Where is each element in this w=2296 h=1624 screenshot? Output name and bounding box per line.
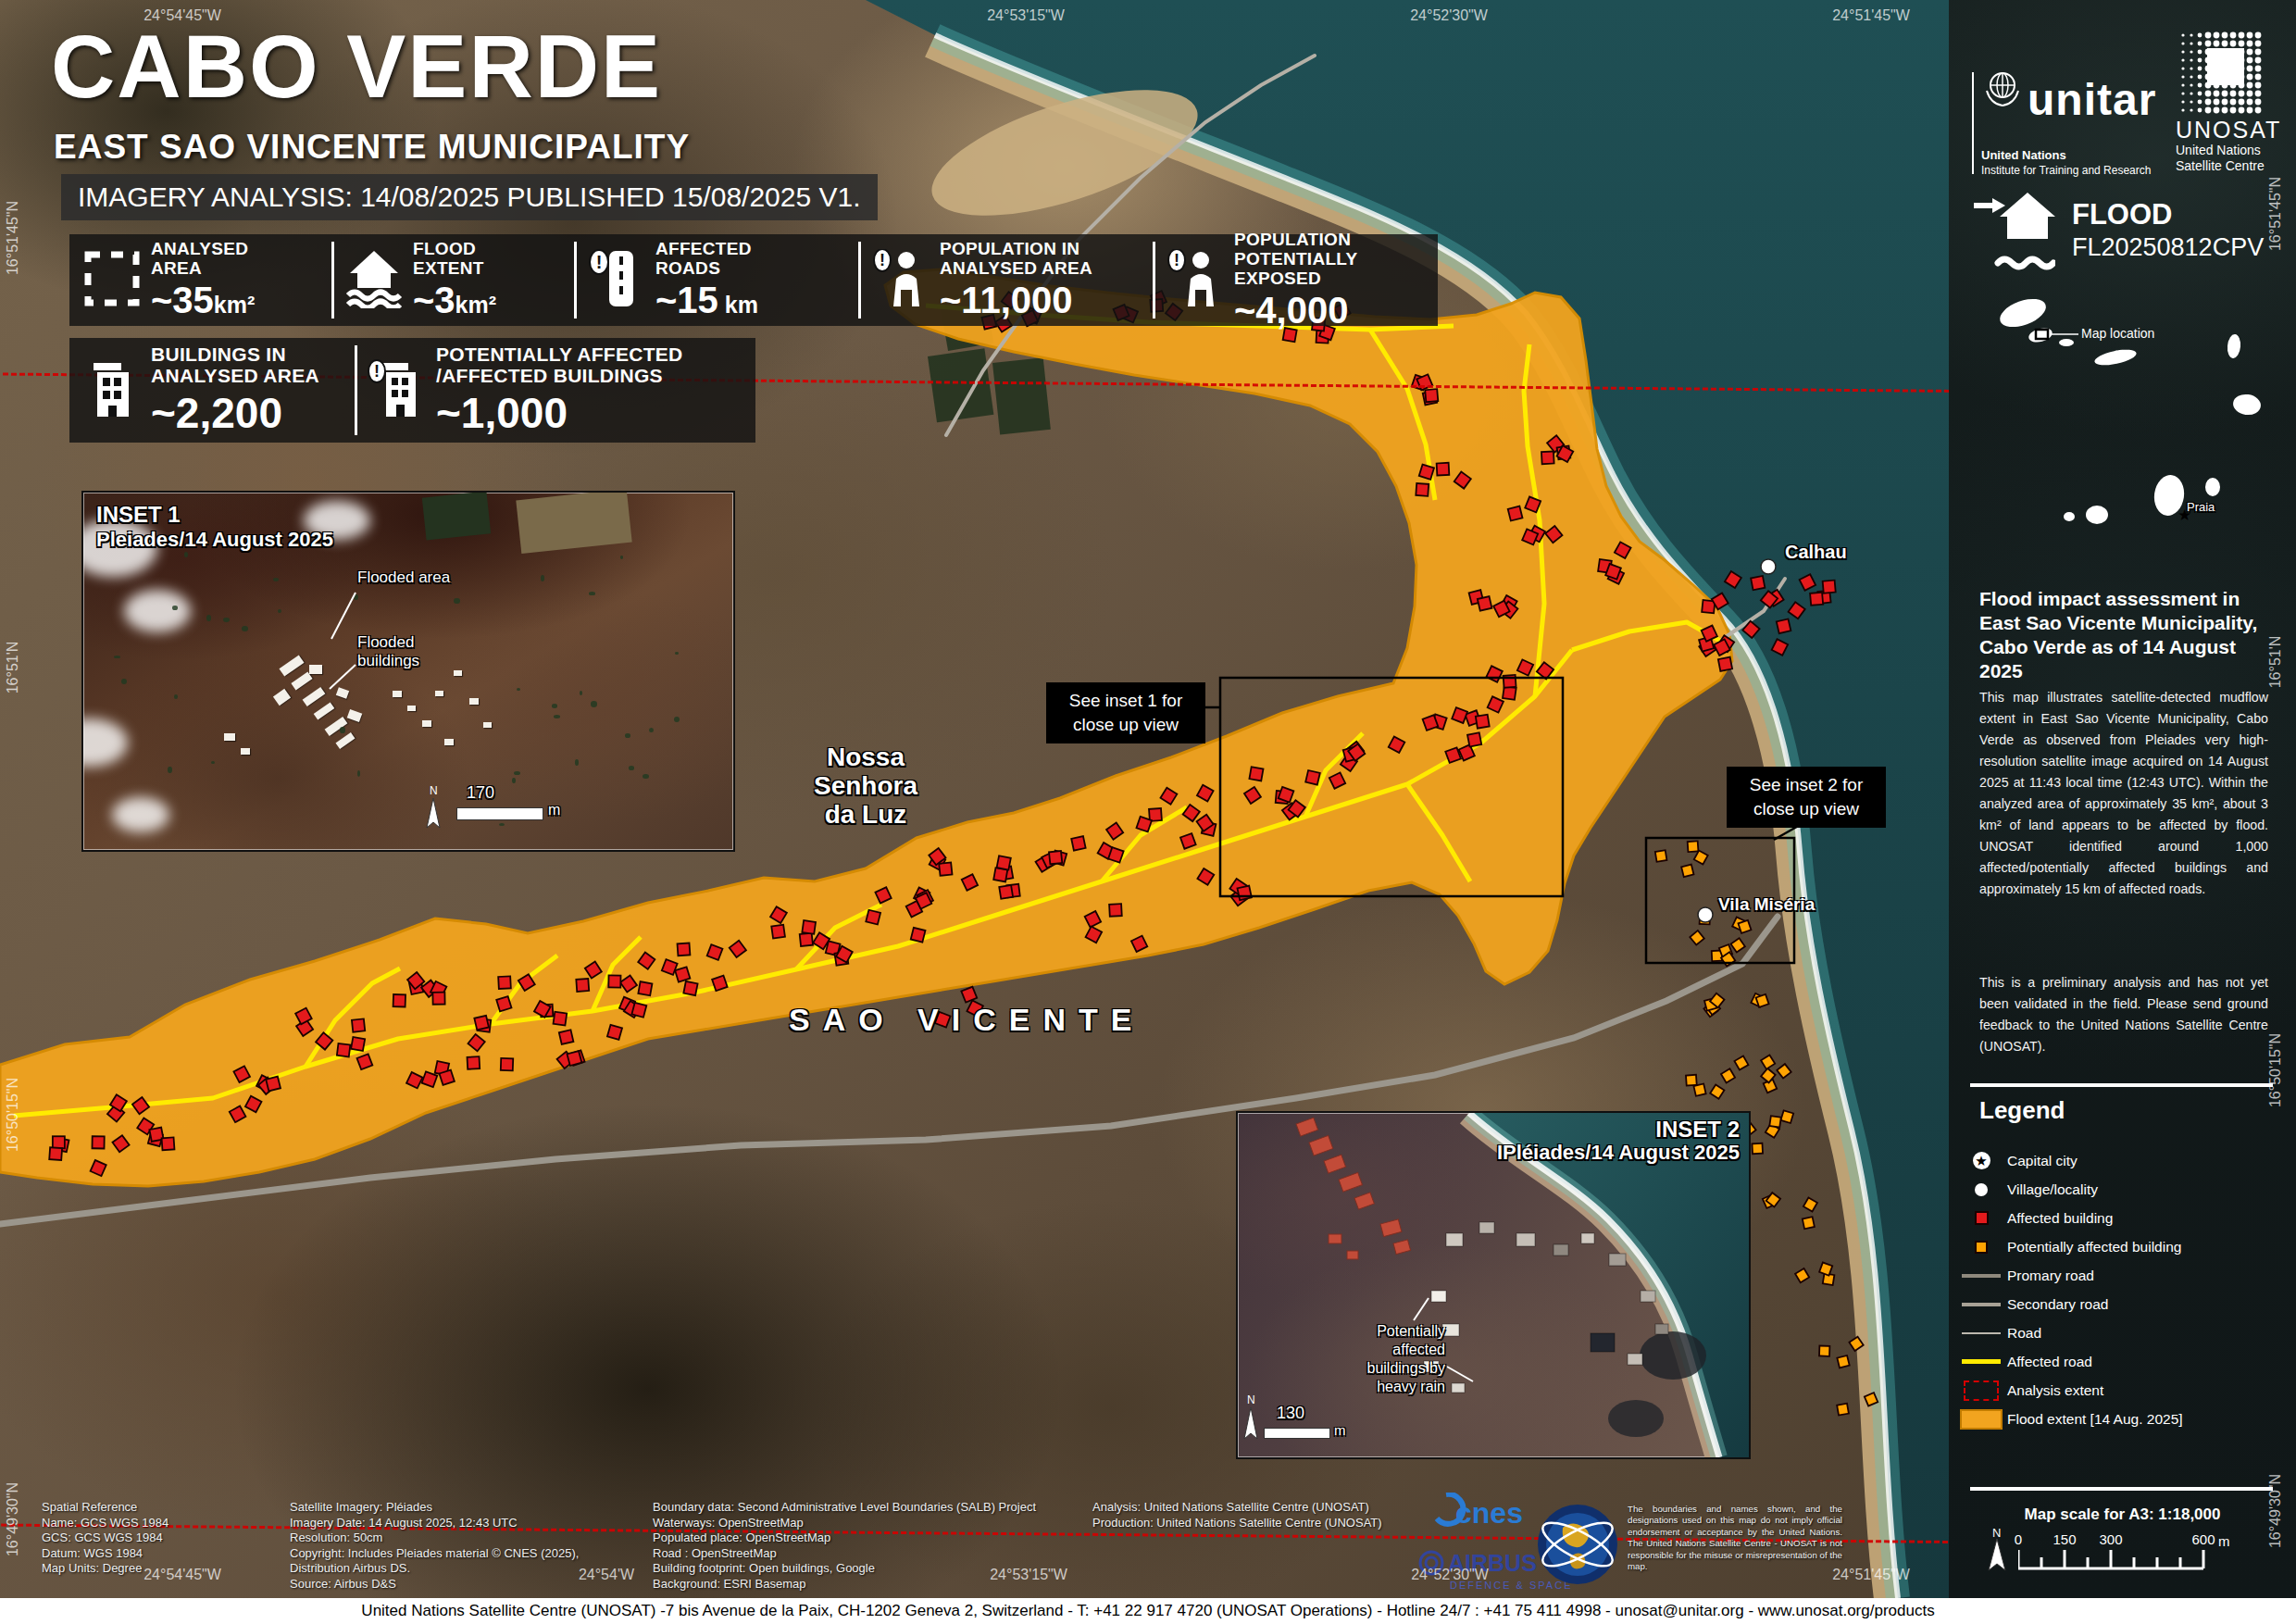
island-shape — [2205, 478, 2220, 496]
svg-text:!: ! — [880, 251, 885, 269]
event-type-label: FLOOD — [2072, 198, 2173, 231]
legend-label: Affected building — [2007, 1210, 2113, 1227]
scale-bar — [2018, 1548, 2209, 1572]
stats-row-2: BUILDINGS INANALYSED AREA~2,200!POTENTIA… — [69, 338, 755, 443]
metadata-line: Copyright: Includes Pleiades material © … — [290, 1546, 579, 1562]
metadata-line: Spatial Reference — [42, 1500, 168, 1516]
island-shape — [2232, 393, 2263, 417]
page-subtitle: EAST SAO VINCENTE MUNICIPALITY — [54, 128, 690, 167]
analysis-extent-outline — [0, 372, 1991, 1543]
coordinate-label: 24°53'15"W — [970, 7, 1081, 24]
coordinate-label: 24°54'W — [551, 1567, 662, 1583]
stat-cell: !POPULATIONPOTENTIALLY EXPOSED~4,000 — [1153, 234, 1438, 326]
stat-label: ANALYSEDAREA — [151, 239, 255, 278]
metadata-line: Datum: WGS 1984 — [42, 1546, 168, 1562]
coordinate-label: 16°51'N — [2267, 606, 2284, 718]
affroad-swatch-icon — [1955, 1359, 2007, 1364]
svg-text:N: N — [1992, 1526, 2001, 1540]
metadata-line: Distribution Airbus DS. — [290, 1561, 579, 1577]
stat-cell: ANALYSEDAREA~35km² — [69, 234, 331, 326]
stat-cell: BUILDINGS INANALYSED AREA~2,200 — [69, 338, 355, 443]
metadata-line: Boundary data: Second Administrative Lev… — [653, 1500, 1036, 1516]
svg-text:!: ! — [596, 252, 603, 272]
metadata-line: Satellite Imagery: Pléiades — [290, 1500, 579, 1516]
scale-unit-label: m — [2218, 1533, 2230, 1549]
legend-item: Flood extent [14 Aug. 2025] — [1955, 1405, 2183, 1433]
island-shape — [2059, 339, 2074, 346]
scale-tick-label: 600 — [2187, 1531, 2220, 1547]
stat-value: ~4,000 — [1234, 290, 1438, 331]
report-title: Flood impact assessment in East Sao Vice… — [1979, 587, 2276, 683]
cnes-logo-text: cnes — [1455, 1496, 1523, 1530]
flood-event-icon — [1970, 185, 2055, 270]
legend-item: Analysis extent — [1955, 1376, 2103, 1405]
coordinate-label: 16°51'45"N — [2267, 158, 2284, 269]
coordinate-label: 24°51'45"W — [1816, 1567, 1927, 1583]
metadata-line: Production: United Nations Satellite Cen… — [1092, 1516, 1382, 1531]
potential-swatch-icon — [1955, 1241, 2007, 1254]
event-code-label: FL20250812CPV — [2072, 233, 2264, 262]
stat-label: POTENTIALLY AFFECTED/AFFECTED BUILDINGS — [436, 344, 683, 386]
unosat-logo-icon — [2176, 28, 2265, 117]
coordinate-label: 24°51'45"W — [1816, 7, 1927, 24]
metadata-line: Road : OpenStreetMap — [653, 1546, 1036, 1562]
stat-cell: !POPULATION INANALYSED AREA~11,000 — [858, 234, 1153, 326]
coordinate-label: 24°52'30"W — [1393, 7, 1504, 24]
location-minimap: ★ — [1949, 278, 2296, 556]
unosat-wordmark: UNOSAT — [2176, 117, 2281, 144]
legend-label: Affected road — [2007, 1354, 2092, 1370]
metadata-line: Imagery Date: 14 August 2025, 12:43 UTC — [290, 1516, 579, 1531]
legend-title: Legend — [1979, 1096, 2065, 1125]
affected-road-icon: ! — [587, 249, 646, 308]
unitar-wordmark: unitar — [2028, 74, 2156, 125]
scale-tick-label: 0 — [2002, 1531, 2035, 1547]
island-shape — [2086, 506, 2108, 524]
stat-value: ~2,200 — [151, 388, 319, 438]
stat-divider — [574, 242, 577, 319]
footer-text: United Nations Satellite Centre (UNOSAT)… — [361, 1602, 1934, 1620]
report-paragraph-2: This is a preliminary analysis and has n… — [1979, 972, 2268, 1057]
divider — [1970, 1487, 2273, 1491]
legend-label: Capital city — [2007, 1153, 2078, 1169]
coordinate-label: 16°49'30"N — [5, 1464, 21, 1575]
page-title: CABO VERDE — [51, 20, 662, 114]
stat-label: FLOODEXTENT — [413, 239, 496, 278]
scale-tick-label: 300 — [2094, 1531, 2128, 1547]
village-swatch-icon — [1955, 1183, 2007, 1196]
legend-item: Promary road — [1955, 1261, 2094, 1290]
unitar-line2: Institute for Training and Research — [1981, 164, 2151, 177]
svg-text:!: ! — [374, 362, 380, 381]
unitar-line1: United Nations — [1981, 148, 2066, 162]
stat-value: ~1,000 — [436, 388, 683, 438]
capital-swatch-icon: ★ — [1955, 1152, 2007, 1169]
un-emblem-icon — [1981, 67, 2024, 109]
dashed-square-icon — [82, 249, 142, 308]
imagery-analysis-banner: IMAGERY ANALYSIS: 14/08/2025 PUBLISHED 1… — [61, 174, 878, 220]
stats-row-1: ANALYSEDAREA~35km²FLOODEXTENT~3km²!AFFEC… — [69, 234, 1438, 326]
metadata-column: Analysis: United Nations Satellite Centr… — [1092, 1500, 1382, 1530]
coordinate-label: 16°50'15"N — [5, 1059, 21, 1170]
map-location-label: Map location — [2081, 326, 2154, 341]
metadata-line: GCS: GCS WGS 1984 — [42, 1530, 168, 1546]
metadata-line: Analysis: United Nations Satellite Centr… — [1092, 1500, 1382, 1516]
unosat-globe-logo — [1535, 1493, 1620, 1593]
metadata-column: Satellite Imagery: PléiadesImagery Date:… — [290, 1500, 579, 1592]
legend-label: Village/locality — [2007, 1181, 2098, 1198]
coordinate-label: 16°51'45"N — [5, 182, 21, 294]
legend-item: Village/locality — [1955, 1175, 2098, 1204]
metadata-line: Waterways: OpenStreetMap — [653, 1516, 1036, 1531]
legend-item: Affected road — [1955, 1347, 2092, 1376]
stat-cell: !AFFECTEDROADS~15 km — [574, 234, 858, 326]
metadata-column: Spatial ReferenceName: GCS WGS 1984GCS: … — [42, 1500, 168, 1577]
population-icon: ! — [871, 249, 930, 308]
stat-value: ~15 km — [655, 280, 758, 321]
stat-label: POPULATIONPOTENTIALLY EXPOSED — [1234, 230, 1438, 288]
island-shape — [1996, 294, 2050, 332]
road-swatch-icon — [1955, 1332, 2007, 1334]
svg-text:!: ! — [1174, 251, 1179, 269]
stat-value: ~3km² — [413, 280, 496, 321]
legend-label: Analysis extent — [2007, 1382, 2103, 1399]
legend-item: ★Capital city — [1955, 1146, 2078, 1175]
praia-label: Praia — [2187, 500, 2215, 514]
report-paragraph-1: This map illustrates satellite-detected … — [1979, 687, 2268, 900]
map-scale-title: Map scale for A3: 1:18,000 — [1949, 1505, 2296, 1524]
coordinate-label: 16°50'15"N — [2267, 1015, 2284, 1126]
stat-label: AFFECTEDROADS — [655, 239, 758, 278]
affected-swatch-icon — [1955, 1211, 2007, 1225]
legend-label: Road — [2007, 1325, 2041, 1342]
primary-swatch-icon — [1955, 1274, 2007, 1278]
metadata-line: Populated place: OpenStreetMap — [653, 1530, 1036, 1546]
disclaimer-text: The boundaries and names shown, and the … — [1628, 1504, 1842, 1572]
stat-divider — [1153, 242, 1155, 319]
legend-item: Potentially affected building — [1955, 1232, 2181, 1261]
building-alert-icon: ! — [368, 359, 427, 418]
stat-label: BUILDINGS INANALYSED AREA — [151, 344, 319, 386]
island-shape — [2064, 512, 2075, 521]
secondary-swatch-icon — [1955, 1303, 2007, 1306]
unosat-line2: Satellite Centre — [2176, 158, 2265, 173]
unitar-divider — [1972, 72, 1974, 174]
footer-contact-bar: United Nations Satellite Centre (UNOSAT)… — [0, 1598, 2296, 1624]
building-icon — [82, 359, 142, 418]
coordinate-label: 24°54'45"W — [127, 1567, 238, 1583]
extent-swatch-icon — [1955, 1380, 2007, 1401]
stat-label: POPULATION INANALYSED AREA — [940, 239, 1092, 278]
stat-value: ~35km² — [151, 280, 255, 321]
legend-label: Promary road — [2007, 1268, 2094, 1284]
stat-divider — [331, 242, 334, 319]
unosat-line1: United Nations — [2176, 143, 2261, 157]
map-poster: N INSET 1 Pleiades/14 August 2025 Floode… — [0, 0, 2296, 1624]
population-icon: ! — [1166, 249, 1225, 308]
flood-extent-icon — [344, 249, 404, 308]
coordinate-label: 24°54'45"W — [127, 7, 238, 24]
legend-label: Secondary road — [2007, 1296, 2108, 1313]
island-shape — [2093, 346, 2138, 368]
scale-tick-label: 150 — [2048, 1531, 2081, 1547]
coordinate-label: 16°49'30"N — [2267, 1455, 2284, 1567]
flood-swatch-icon — [1955, 1409, 2007, 1430]
legend-item: Affected building — [1955, 1204, 2113, 1232]
metadata-line: Name: GCS WGS 1984 — [42, 1516, 168, 1531]
divider — [1970, 1083, 2273, 1087]
legend-label: Flood extent [14 Aug. 2025] — [2007, 1411, 2183, 1428]
coordinate-label: 24°53'15"W — [973, 1567, 1084, 1583]
island-shape — [2227, 333, 2241, 358]
legend-item: Secondary road — [1955, 1290, 2108, 1318]
coordinate-label: 24°52'30"W — [1394, 1567, 1505, 1583]
metadata-line: Resolution: 50cm — [290, 1530, 579, 1546]
stat-divider — [858, 242, 861, 319]
stat-cell: FLOODEXTENT~3km² — [331, 234, 574, 326]
stat-cell: !POTENTIALLY AFFECTED/AFFECTED BUILDINGS… — [355, 338, 755, 443]
legend-label: Potentially affected building — [2007, 1239, 2181, 1255]
coordinate-label: 16°51'N — [5, 612, 21, 723]
metadata-line: Source: Airbus D&S — [290, 1577, 579, 1593]
legend-item: Road — [1955, 1318, 2041, 1347]
stat-value: ~11,000 — [940, 280, 1092, 321]
stat-divider — [355, 345, 357, 435]
